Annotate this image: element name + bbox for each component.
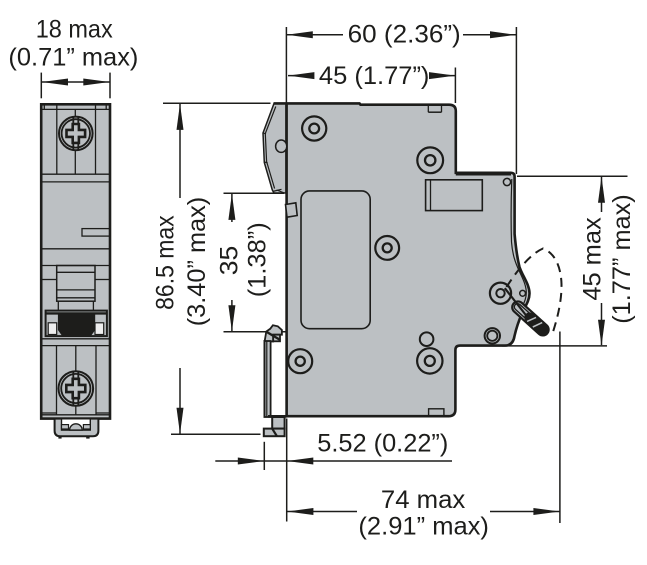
svg-text:(0.71” max): (0.71” max) [8,43,138,71]
svg-text:(3.40” max): (3.40” max) [183,197,211,327]
svg-text:35: 35 [215,246,243,276]
svg-text:45 (1.77”): 45 (1.77”) [319,62,430,90]
svg-text:18 max: 18 max [36,15,113,43]
svg-text:5.52 (0.22”): 5.52 (0.22”) [317,430,448,458]
svg-text:74 max: 74 max [381,486,466,514]
svg-text:(2.91” max): (2.91” max) [358,513,489,541]
svg-text:86.5 max: 86.5 max [152,215,180,310]
svg-text:(1.38”): (1.38”) [243,222,271,297]
svg-text:45 max: 45 max [579,217,607,301]
svg-text:60 (2.36”): 60 (2.36”) [348,21,461,49]
svg-text:(1.77” max): (1.77” max) [608,194,636,324]
